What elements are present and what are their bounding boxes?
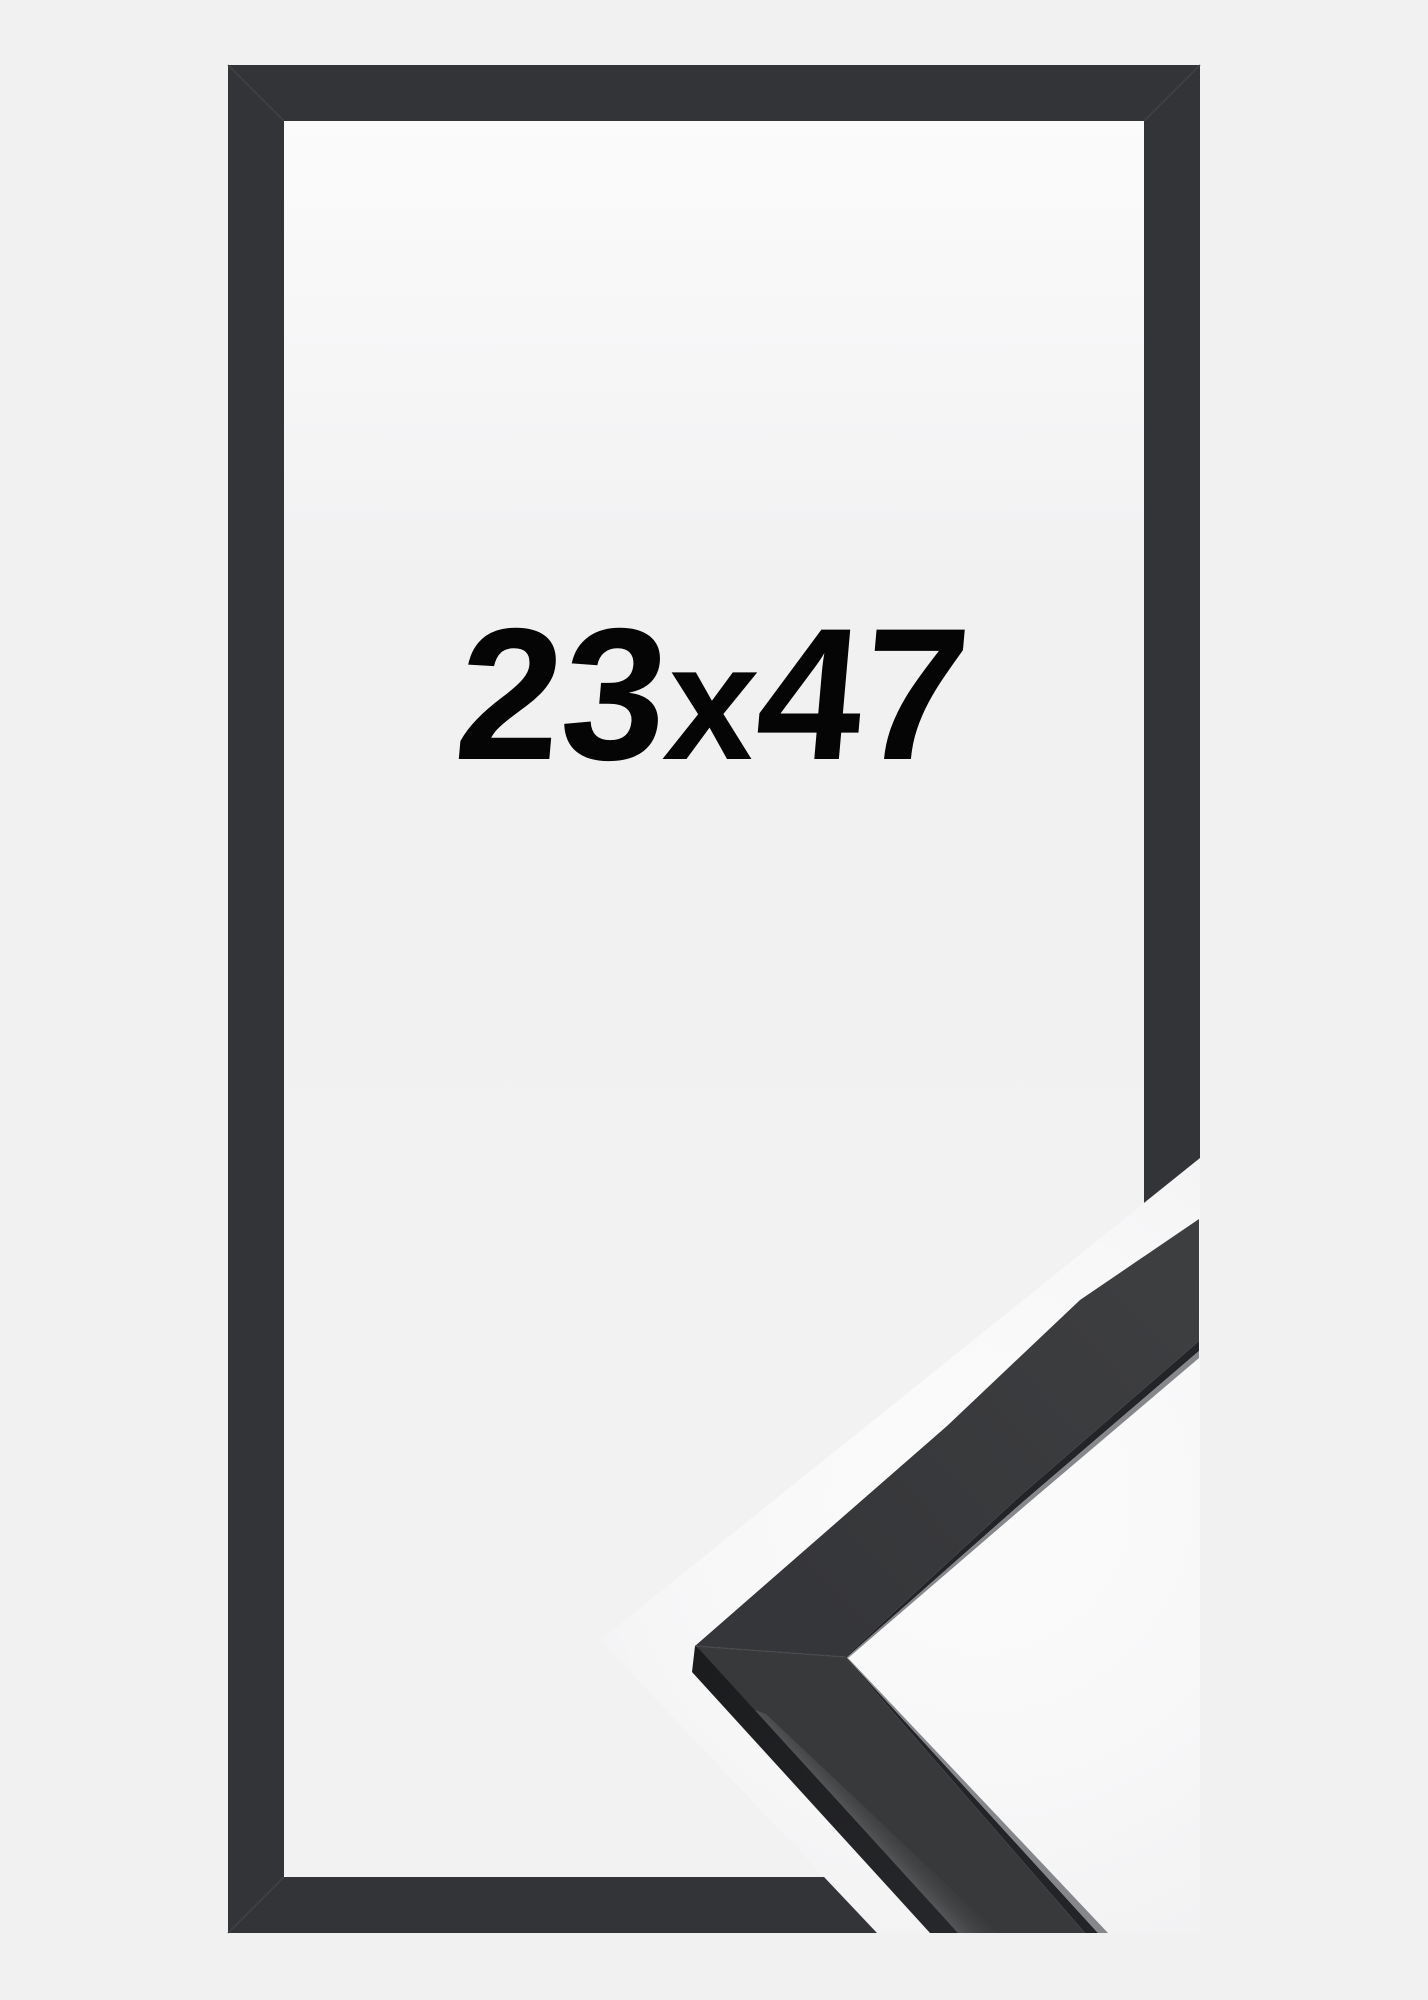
svg-text:23x47: 23x47	[449, 588, 977, 799]
